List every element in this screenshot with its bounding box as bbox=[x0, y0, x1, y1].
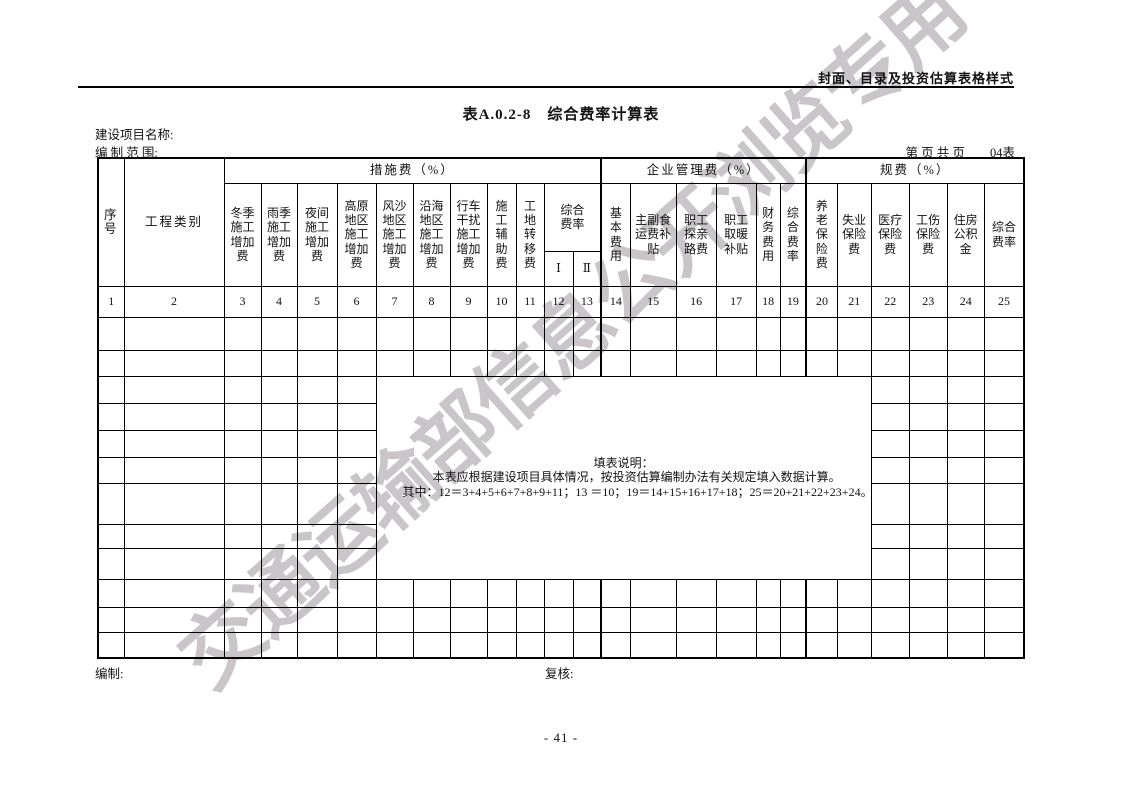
table-row bbox=[98, 317, 1024, 350]
empty-cell bbox=[947, 483, 984, 524]
empty-cell bbox=[756, 579, 780, 607]
empty-cell bbox=[984, 524, 1024, 548]
empty-cell bbox=[261, 403, 297, 430]
empty-cell bbox=[909, 524, 947, 548]
empty-cell bbox=[984, 548, 1024, 579]
empty-cell bbox=[450, 579, 487, 607]
empty-cell bbox=[601, 317, 630, 350]
col-header-plateau: 高原 地区 施工 增加 费 bbox=[337, 183, 376, 286]
col-header-family-visit: 职工 探亲 路费 bbox=[676, 183, 716, 286]
empty-cell bbox=[413, 607, 450, 632]
empty-cell bbox=[224, 350, 261, 376]
empty-cell bbox=[909, 483, 947, 524]
empty-cell bbox=[909, 457, 947, 483]
empty-cell bbox=[871, 430, 909, 457]
col-num: 25 bbox=[984, 286, 1024, 317]
empty-cell bbox=[487, 350, 516, 376]
note-line-1: 本表应根据建设项目具体情况，按投资估算编制办法有关规定填入数据计算。 bbox=[377, 470, 871, 484]
empty-cell bbox=[716, 317, 756, 350]
empty-cell bbox=[261, 430, 297, 457]
empty-cell bbox=[780, 607, 806, 632]
empty-cell bbox=[947, 524, 984, 548]
empty-cell bbox=[676, 350, 716, 376]
empty-cell bbox=[98, 317, 124, 350]
empty-cell bbox=[837, 317, 871, 350]
col-header-medical: 医疗 保险 费 bbox=[871, 183, 909, 286]
empty-cell bbox=[337, 403, 376, 430]
empty-cell bbox=[376, 607, 413, 632]
empty-cell bbox=[630, 317, 676, 350]
empty-cell bbox=[224, 607, 261, 632]
empty-cell bbox=[224, 430, 261, 457]
empty-cell bbox=[224, 483, 261, 524]
empty-cell bbox=[947, 607, 984, 632]
empty-cell bbox=[756, 317, 780, 350]
scope-label: 编 制 范 围: bbox=[95, 142, 158, 161]
column-number-row: 1 2 3 4 5 6 7 8 9 10 11 12 13 14 15 16 1… bbox=[98, 286, 1024, 317]
empty-cell bbox=[806, 350, 837, 376]
col-header-rainy: 雨季 施工 增加 费 bbox=[261, 183, 297, 286]
group-header-fees: 规费（%） bbox=[806, 158, 1024, 183]
empty-cell bbox=[297, 430, 337, 457]
empty-cell bbox=[947, 317, 984, 350]
empty-cell bbox=[124, 350, 224, 376]
empty-cell bbox=[337, 524, 376, 548]
empty-cell bbox=[516, 350, 544, 376]
empty-cell bbox=[601, 350, 630, 376]
empty-cell bbox=[297, 483, 337, 524]
col-num: 24 bbox=[947, 286, 984, 317]
empty-cell bbox=[224, 579, 261, 607]
empty-cell bbox=[716, 607, 756, 632]
empty-cell bbox=[124, 548, 224, 579]
empty-cell bbox=[98, 524, 124, 548]
empty-cell bbox=[297, 350, 337, 376]
empty-cell bbox=[676, 632, 716, 658]
empty-cell bbox=[450, 632, 487, 658]
empty-cell bbox=[261, 548, 297, 579]
empty-cell bbox=[947, 430, 984, 457]
col-num: 10 bbox=[487, 286, 516, 317]
empty-cell bbox=[909, 317, 947, 350]
empty-cell bbox=[98, 403, 124, 430]
empty-cell bbox=[450, 607, 487, 632]
empty-cell bbox=[544, 579, 573, 607]
empty-cell bbox=[224, 317, 261, 350]
empty-cell bbox=[261, 350, 297, 376]
empty-cell bbox=[413, 579, 450, 607]
empty-cell bbox=[984, 430, 1024, 457]
empty-cell bbox=[124, 430, 224, 457]
empty-cell bbox=[806, 632, 837, 658]
col-num: 4 bbox=[261, 286, 297, 317]
empty-cell bbox=[573, 607, 601, 632]
empty-cell bbox=[124, 457, 224, 483]
empty-cell bbox=[947, 548, 984, 579]
page-title: 表A.0.2-8 综合费率计算表 bbox=[0, 103, 1122, 124]
empty-cell bbox=[871, 632, 909, 658]
col-header-winter: 冬季 施工 增加 费 bbox=[224, 183, 261, 286]
empty-cell bbox=[909, 632, 947, 658]
col-num: 8 bbox=[413, 286, 450, 317]
empty-cell bbox=[337, 350, 376, 376]
table-row: 填表说明：本表应根据建设项目具体情况，按投资估算编制办法有关规定填入数据计算。其… bbox=[98, 376, 1024, 403]
col-header-auxiliary: 施 工 辅 助 费 bbox=[487, 183, 516, 286]
empty-cell bbox=[98, 483, 124, 524]
col-num: 12 bbox=[544, 286, 573, 317]
empty-cell bbox=[337, 483, 376, 524]
col-header-unemployment: 失业 保险 费 bbox=[837, 183, 871, 286]
empty-cell bbox=[124, 317, 224, 350]
empty-cell bbox=[837, 579, 871, 607]
col-header-heating: 职工 取暖 补贴 bbox=[716, 183, 756, 286]
empty-cell bbox=[780, 350, 806, 376]
col-header-category: 工程类别 bbox=[124, 158, 224, 286]
empty-cell bbox=[573, 317, 601, 350]
table-row bbox=[98, 607, 1024, 632]
empty-cell bbox=[124, 579, 224, 607]
empty-cell bbox=[98, 350, 124, 376]
empty-cell bbox=[516, 632, 544, 658]
empty-cell bbox=[337, 548, 376, 579]
empty-cell bbox=[450, 350, 487, 376]
empty-cell bbox=[297, 579, 337, 607]
col-header-composite-I: Ⅰ bbox=[544, 251, 573, 286]
empty-cell bbox=[780, 317, 806, 350]
empty-cell bbox=[98, 376, 124, 403]
empty-cell bbox=[716, 579, 756, 607]
empty-cell bbox=[780, 579, 806, 607]
empty-cell bbox=[224, 548, 261, 579]
col-num: 15 bbox=[630, 286, 676, 317]
note-line-2: 其中：12＝3+4+5+6+7+8+9+11；13 ＝10；19＝14+15+1… bbox=[377, 485, 871, 499]
col-num: 23 bbox=[909, 286, 947, 317]
empty-cell bbox=[780, 632, 806, 658]
empty-cell bbox=[984, 317, 1024, 350]
empty-cell bbox=[297, 403, 337, 430]
empty-cell bbox=[756, 632, 780, 658]
empty-cell bbox=[487, 579, 516, 607]
empty-cell bbox=[544, 632, 573, 658]
checked-by-label: 复核: bbox=[545, 663, 573, 682]
page-info: 第 页 共 页 04表 bbox=[905, 142, 1015, 161]
empty-cell bbox=[98, 457, 124, 483]
col-num: 6 bbox=[337, 286, 376, 317]
empty-cell bbox=[261, 317, 297, 350]
empty-cell bbox=[297, 607, 337, 632]
empty-cell bbox=[947, 350, 984, 376]
empty-cell bbox=[376, 632, 413, 658]
group-header-measures: 措施费（%） bbox=[224, 158, 601, 183]
col-header-food-subsidy: 主副食 运费补 贴 bbox=[630, 183, 676, 286]
empty-cell bbox=[630, 579, 676, 607]
note-title: 填表说明： bbox=[377, 456, 871, 470]
empty-cell bbox=[601, 607, 630, 632]
col-num: 2 bbox=[124, 286, 224, 317]
empty-cell bbox=[297, 548, 337, 579]
empty-cell bbox=[544, 607, 573, 632]
empty-cell bbox=[413, 350, 450, 376]
empty-cell bbox=[337, 376, 376, 403]
col-header-coastal: 沿海 地区 施工 增加 费 bbox=[413, 183, 450, 286]
header-rule bbox=[78, 86, 1014, 88]
table-row bbox=[98, 350, 1024, 376]
empty-cell bbox=[261, 376, 297, 403]
prepared-by-label: 编制: bbox=[95, 663, 123, 682]
empty-cell bbox=[716, 350, 756, 376]
empty-cell bbox=[947, 579, 984, 607]
empty-cell bbox=[297, 317, 337, 350]
empty-cell bbox=[224, 403, 261, 430]
composite-rate-table: 序 号 工程类别 措施费（%） 企业管理费（%） 规费（%） 冬季 施工 增加 … bbox=[97, 157, 1025, 659]
col-header-night: 夜间 施工 增加 费 bbox=[297, 183, 337, 286]
page-of-pages-label: 第 页 共 页 bbox=[905, 146, 964, 160]
empty-cell bbox=[676, 317, 716, 350]
empty-cell bbox=[337, 579, 376, 607]
empty-cell bbox=[487, 632, 516, 658]
table-number-label: 04表 bbox=[990, 146, 1015, 160]
empty-cell bbox=[984, 350, 1024, 376]
col-num: 9 bbox=[450, 286, 487, 317]
empty-cell bbox=[124, 376, 224, 403]
empty-cell bbox=[297, 457, 337, 483]
col-num: 21 bbox=[837, 286, 871, 317]
empty-cell bbox=[630, 607, 676, 632]
empty-cell bbox=[909, 350, 947, 376]
col-num: 11 bbox=[516, 286, 544, 317]
empty-cell bbox=[516, 579, 544, 607]
empty-cell bbox=[337, 317, 376, 350]
empty-cell bbox=[297, 376, 337, 403]
empty-cell bbox=[601, 632, 630, 658]
empty-cell bbox=[601, 579, 630, 607]
empty-cell bbox=[98, 548, 124, 579]
col-num: 18 bbox=[756, 286, 780, 317]
document-page: 交通运输部信息公开浏览专用 封面、目录及投资估算表格样式 表A.0.2-8 综合… bbox=[0, 0, 1122, 793]
empty-cell bbox=[297, 632, 337, 658]
empty-cell bbox=[871, 524, 909, 548]
col-header-composite-rate: 综合 费率 bbox=[544, 183, 601, 251]
table-row bbox=[98, 579, 1024, 607]
empty-cell bbox=[516, 317, 544, 350]
empty-cell bbox=[573, 632, 601, 658]
empty-cell bbox=[756, 350, 780, 376]
empty-cell bbox=[871, 579, 909, 607]
empty-cell bbox=[261, 632, 297, 658]
empty-cell bbox=[716, 632, 756, 658]
empty-cell bbox=[984, 632, 1024, 658]
empty-cell bbox=[224, 457, 261, 483]
empty-cell bbox=[984, 483, 1024, 524]
table-row bbox=[98, 632, 1024, 658]
empty-cell bbox=[871, 457, 909, 483]
col-header-pension: 养 老 保 险 费 bbox=[806, 183, 837, 286]
empty-cell bbox=[676, 579, 716, 607]
col-header-basic: 基 本 费 用 bbox=[601, 183, 630, 286]
empty-cell bbox=[756, 607, 780, 632]
col-header-fees-composite: 综合 费率 bbox=[984, 183, 1024, 286]
empty-cell bbox=[837, 632, 871, 658]
empty-cell bbox=[837, 350, 871, 376]
group-header-management: 企业管理费（%） bbox=[601, 158, 806, 183]
empty-cell bbox=[984, 607, 1024, 632]
col-header-windsand: 风沙 地区 施工 增加 费 bbox=[376, 183, 413, 286]
col-header-finance: 财 务 费 用 bbox=[756, 183, 780, 286]
empty-cell bbox=[261, 483, 297, 524]
empty-cell bbox=[909, 403, 947, 430]
empty-cell bbox=[544, 350, 573, 376]
empty-cell bbox=[947, 457, 984, 483]
empty-cell bbox=[413, 632, 450, 658]
empty-cell bbox=[947, 376, 984, 403]
col-num: 16 bbox=[676, 286, 716, 317]
col-header-site-transfer: 工 地 转 移 费 bbox=[516, 183, 544, 286]
empty-cell bbox=[630, 632, 676, 658]
empty-cell bbox=[487, 607, 516, 632]
empty-cell bbox=[376, 350, 413, 376]
empty-cell bbox=[376, 317, 413, 350]
empty-cell bbox=[871, 548, 909, 579]
empty-cell bbox=[337, 632, 376, 658]
empty-cell bbox=[630, 350, 676, 376]
empty-cell bbox=[871, 376, 909, 403]
empty-cell bbox=[337, 457, 376, 483]
empty-cell bbox=[984, 403, 1024, 430]
empty-cell bbox=[909, 376, 947, 403]
col-num: 5 bbox=[297, 286, 337, 317]
col-header-seq: 序 号 bbox=[98, 158, 124, 286]
empty-cell bbox=[984, 579, 1024, 607]
empty-cell bbox=[806, 607, 837, 632]
col-header-mgmt-composite: 综 合 费 率 bbox=[780, 183, 806, 286]
col-num: 3 bbox=[224, 286, 261, 317]
empty-cell bbox=[573, 579, 601, 607]
empty-cell bbox=[871, 607, 909, 632]
empty-cell bbox=[909, 579, 947, 607]
empty-cell bbox=[984, 376, 1024, 403]
col-header-housing-fund: 住房 公积 金 bbox=[947, 183, 984, 286]
empty-cell bbox=[806, 317, 837, 350]
empty-cell bbox=[544, 317, 573, 350]
empty-cell bbox=[224, 632, 261, 658]
empty-cell bbox=[124, 632, 224, 658]
col-header-injury: 工伤 保险 费 bbox=[909, 183, 947, 286]
empty-cell bbox=[124, 524, 224, 548]
col-num: 13 bbox=[573, 286, 601, 317]
empty-cell bbox=[297, 524, 337, 548]
empty-cell bbox=[261, 579, 297, 607]
empty-cell bbox=[871, 317, 909, 350]
empty-cell bbox=[871, 483, 909, 524]
col-num: 7 bbox=[376, 286, 413, 317]
empty-cell bbox=[450, 317, 487, 350]
empty-cell bbox=[261, 607, 297, 632]
fill-instructions-note: 填表说明：本表应根据建设项目具体情况，按投资估算编制办法有关规定填入数据计算。其… bbox=[376, 376, 871, 579]
empty-cell bbox=[837, 607, 871, 632]
empty-cell bbox=[947, 403, 984, 430]
col-num: 14 bbox=[601, 286, 630, 317]
empty-cell bbox=[909, 607, 947, 632]
empty-cell bbox=[676, 607, 716, 632]
empty-cell bbox=[224, 524, 261, 548]
empty-cell bbox=[984, 457, 1024, 483]
doc-type-heading: 封面、目录及投资估算表格样式 bbox=[818, 68, 1014, 87]
empty-cell bbox=[806, 579, 837, 607]
empty-cell bbox=[871, 350, 909, 376]
empty-cell bbox=[337, 430, 376, 457]
empty-cell bbox=[261, 524, 297, 548]
empty-cell bbox=[98, 632, 124, 658]
empty-cell bbox=[487, 317, 516, 350]
empty-cell bbox=[124, 483, 224, 524]
empty-cell bbox=[909, 430, 947, 457]
project-name-label: 建设项目名称: bbox=[95, 124, 173, 143]
empty-cell bbox=[516, 607, 544, 632]
empty-cell bbox=[98, 430, 124, 457]
empty-cell bbox=[98, 607, 124, 632]
col-num: 22 bbox=[871, 286, 909, 317]
empty-cell bbox=[376, 579, 413, 607]
empty-cell bbox=[573, 350, 601, 376]
empty-cell bbox=[224, 376, 261, 403]
empty-cell bbox=[337, 607, 376, 632]
col-header-composite-II: Ⅱ bbox=[573, 251, 601, 286]
col-header-traffic: 行车 干扰 施工 增加 费 bbox=[450, 183, 487, 286]
page-number: - 41 - bbox=[0, 730, 1122, 746]
empty-cell bbox=[124, 403, 224, 430]
empty-cell bbox=[413, 317, 450, 350]
empty-cell bbox=[124, 607, 224, 632]
col-num: 1 bbox=[98, 286, 124, 317]
col-num: 17 bbox=[716, 286, 756, 317]
empty-cell bbox=[98, 579, 124, 607]
empty-cell bbox=[909, 548, 947, 579]
empty-cell bbox=[947, 632, 984, 658]
col-num: 20 bbox=[806, 286, 837, 317]
col-num: 19 bbox=[780, 286, 806, 317]
empty-cell bbox=[871, 403, 909, 430]
empty-cell bbox=[261, 457, 297, 483]
